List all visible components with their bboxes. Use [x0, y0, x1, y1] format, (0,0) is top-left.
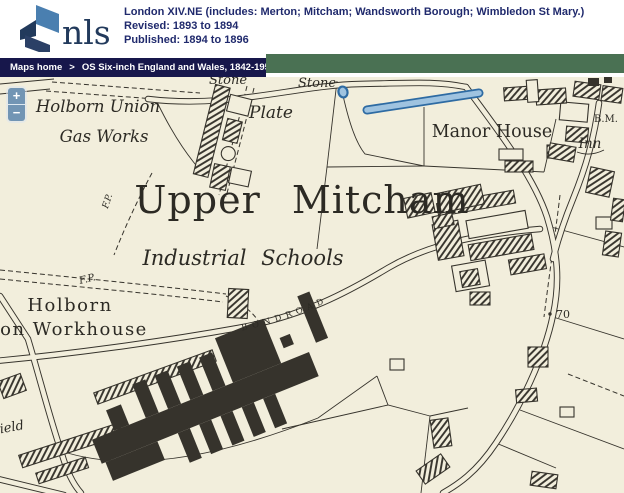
logo-text: nls: [62, 13, 111, 52]
label-holborn: Holborn: [27, 295, 112, 316]
label-stone-a: Stone: [209, 77, 247, 88]
label-inn: Inn: [578, 136, 602, 152]
sheet-revised: Revised: 1893 to 1894: [124, 19, 584, 33]
zoom-in-button[interactable]: +: [8, 88, 25, 104]
label-manor-house: Manor House: [432, 122, 553, 142]
map-edge-band: [266, 54, 624, 73]
label-workhouse: on Workhouse: [0, 319, 148, 340]
map-zoom-control: + −: [8, 88, 25, 121]
label-spot-height-70: 70: [556, 308, 570, 321]
nls-logo[interactable]: nls: [12, 4, 114, 52]
site-header: nls London XIV.NE (includes: Merton; Mit…: [0, 0, 624, 54]
label-gas-works-2: Gas Works: [60, 127, 149, 146]
logo-shape-bottom: [25, 35, 50, 52]
sheet-title: London XIV.NE (includes: Merton; Mitcham…: [124, 5, 584, 19]
spot-height-dot: [548, 312, 551, 315]
map-sheet-info: London XIV.NE (includes: Merton; Mitcham…: [124, 5, 584, 47]
map-viewport[interactable]: Stone Stone Plate Holborn Union Gas Work…: [0, 77, 624, 493]
label-gas-works-1: Holborn Union: [35, 97, 160, 116]
label-plate: Plate: [248, 103, 293, 123]
nav-row: Maps home > OS Six-inch England and Wale…: [0, 54, 624, 77]
breadcrumb-separator: >: [69, 62, 75, 73]
label-industrial-schools: Industrial Schools: [141, 246, 343, 270]
label-stone-b: Stone: [298, 77, 336, 91]
breadcrumb-maps-home-link[interactable]: Maps home: [10, 62, 62, 73]
sheet-published: Published: 1894 to 1896: [124, 33, 584, 47]
breadcrumb-collection-link[interactable]: OS Six-inch England and Wales, 1842-1952: [82, 62, 275, 73]
breadcrumb: Maps home > OS Six-inch England and Wale…: [0, 58, 266, 77]
map-canvas[interactable]: Stone Stone Plate Holborn Union Gas Work…: [0, 77, 624, 493]
label-bench-mark: B.M.: [594, 114, 618, 125]
logo-shape-blue: [36, 5, 59, 33]
label-upper-mitcham: Upper Mitcham: [134, 178, 469, 222]
zoom-out-button[interactable]: −: [8, 104, 25, 121]
